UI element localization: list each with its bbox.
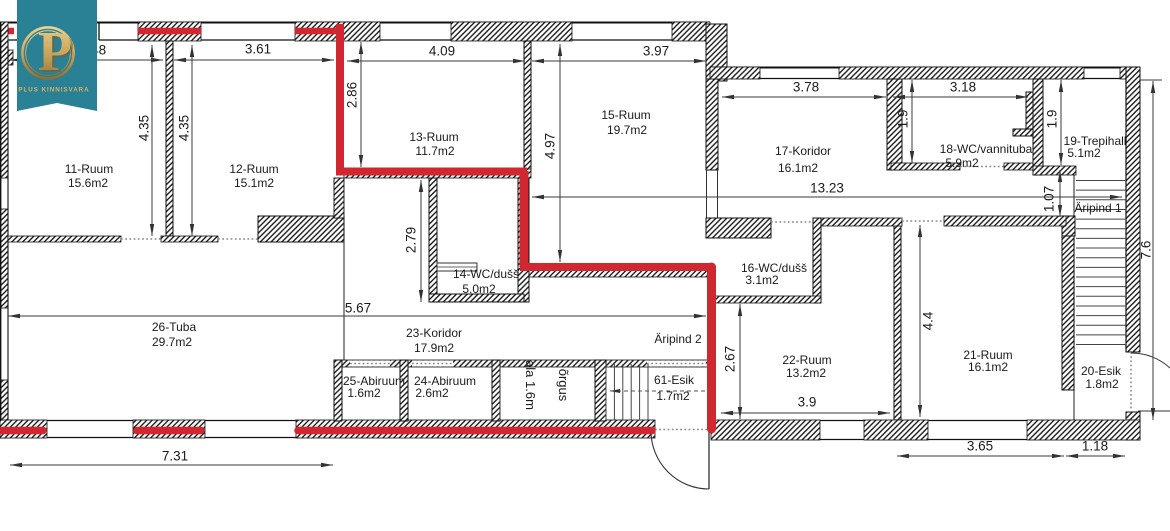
svg-text:19.7m2: 19.7m2 (607, 123, 647, 137)
svg-text:P: P (38, 21, 72, 83)
svg-text:13.2m2: 13.2m2 (786, 366, 826, 380)
svg-text:3.1m2: 3.1m2 (745, 273, 779, 287)
svg-text:1.7m2: 1.7m2 (656, 389, 690, 403)
svg-text:12-Ruum: 12-Ruum (229, 162, 278, 176)
svg-text:14-WC/dušš: 14-WC/dušš (453, 267, 519, 281)
svg-text:13.23: 13.23 (810, 181, 844, 196)
svg-text:5.67: 5.67 (345, 301, 371, 316)
svg-text:3.61: 3.61 (245, 42, 271, 57)
svg-text:3.65: 3.65 (967, 439, 993, 454)
svg-text:5.0m2: 5.0m2 (462, 282, 496, 296)
svg-text:4.4: 4.4 (921, 311, 936, 330)
svg-text:5.9m2: 5.9m2 (945, 156, 979, 170)
svg-text:15.6m2: 15.6m2 (68, 176, 108, 190)
svg-text:Äripind 1: Äripind 1 (1074, 201, 1122, 215)
svg-text:1.07: 1.07 (1042, 186, 1057, 212)
svg-text:2.6m2: 2.6m2 (415, 386, 449, 400)
svg-text:3.18: 3.18 (950, 80, 976, 95)
svg-text:1.18: 1.18 (1082, 439, 1108, 454)
svg-text:4.35: 4.35 (177, 115, 192, 141)
svg-text:61-Esik: 61-Esik (654, 373, 695, 387)
svg-text:1.9: 1.9 (1045, 110, 1060, 129)
svg-text:22-Ruum: 22-Ruum (782, 353, 831, 367)
svg-text:1.8m2: 1.8m2 (1085, 377, 1119, 391)
svg-text:3.9: 3.9 (798, 395, 817, 410)
svg-text:15.1m2: 15.1m2 (234, 176, 274, 190)
svg-text:2.86: 2.86 (345, 82, 360, 108)
svg-text:1.6m2: 1.6m2 (347, 386, 381, 400)
svg-text:17-Koridor: 17-Koridor (775, 144, 831, 158)
svg-text:20-Esik: 20-Esik (1081, 364, 1122, 378)
svg-text:11-Ruum: 11-Ruum (65, 162, 113, 176)
svg-text:4.35: 4.35 (137, 115, 152, 141)
svg-text:2.67: 2.67 (723, 346, 738, 372)
svg-text:16.1m2: 16.1m2 (778, 161, 818, 175)
svg-text:15-Ruum: 15-Ruum (601, 108, 650, 122)
svg-text:7.6: 7.6 (1139, 241, 1154, 260)
svg-text:4.97: 4.97 (543, 133, 558, 159)
svg-text:Äripind 2: Äripind 2 (654, 332, 702, 346)
svg-text:13-Ruum: 13-Ruum (409, 130, 458, 144)
svg-text:18-WC/vannituba: 18-WC/vannituba (940, 142, 1033, 156)
svg-text:7.31: 7.31 (162, 449, 188, 464)
svg-text:5.1m2: 5.1m2 (1067, 146, 1101, 160)
svg-text:26-Tuba: 26-Tuba (152, 320, 197, 334)
svg-text:17.9m2: 17.9m2 (414, 341, 454, 355)
svg-text:2.79: 2.79 (404, 227, 419, 253)
svg-text:PLUS KINNISVARA: PLUS KINNISVARA (18, 87, 89, 94)
svg-text:1.9: 1.9 (896, 110, 911, 129)
svg-text:11.7m2: 11.7m2 (415, 144, 454, 158)
svg-text:3.97: 3.97 (643, 44, 669, 59)
svg-text:4.09: 4.09 (429, 44, 455, 59)
svg-text:23-Koridor: 23-Koridor (406, 326, 462, 340)
svg-text:29.7m2: 29.7m2 (152, 335, 192, 349)
svg-text:3.78: 3.78 (793, 80, 819, 95)
svg-text:16.1m2: 16.1m2 (968, 360, 1008, 374)
